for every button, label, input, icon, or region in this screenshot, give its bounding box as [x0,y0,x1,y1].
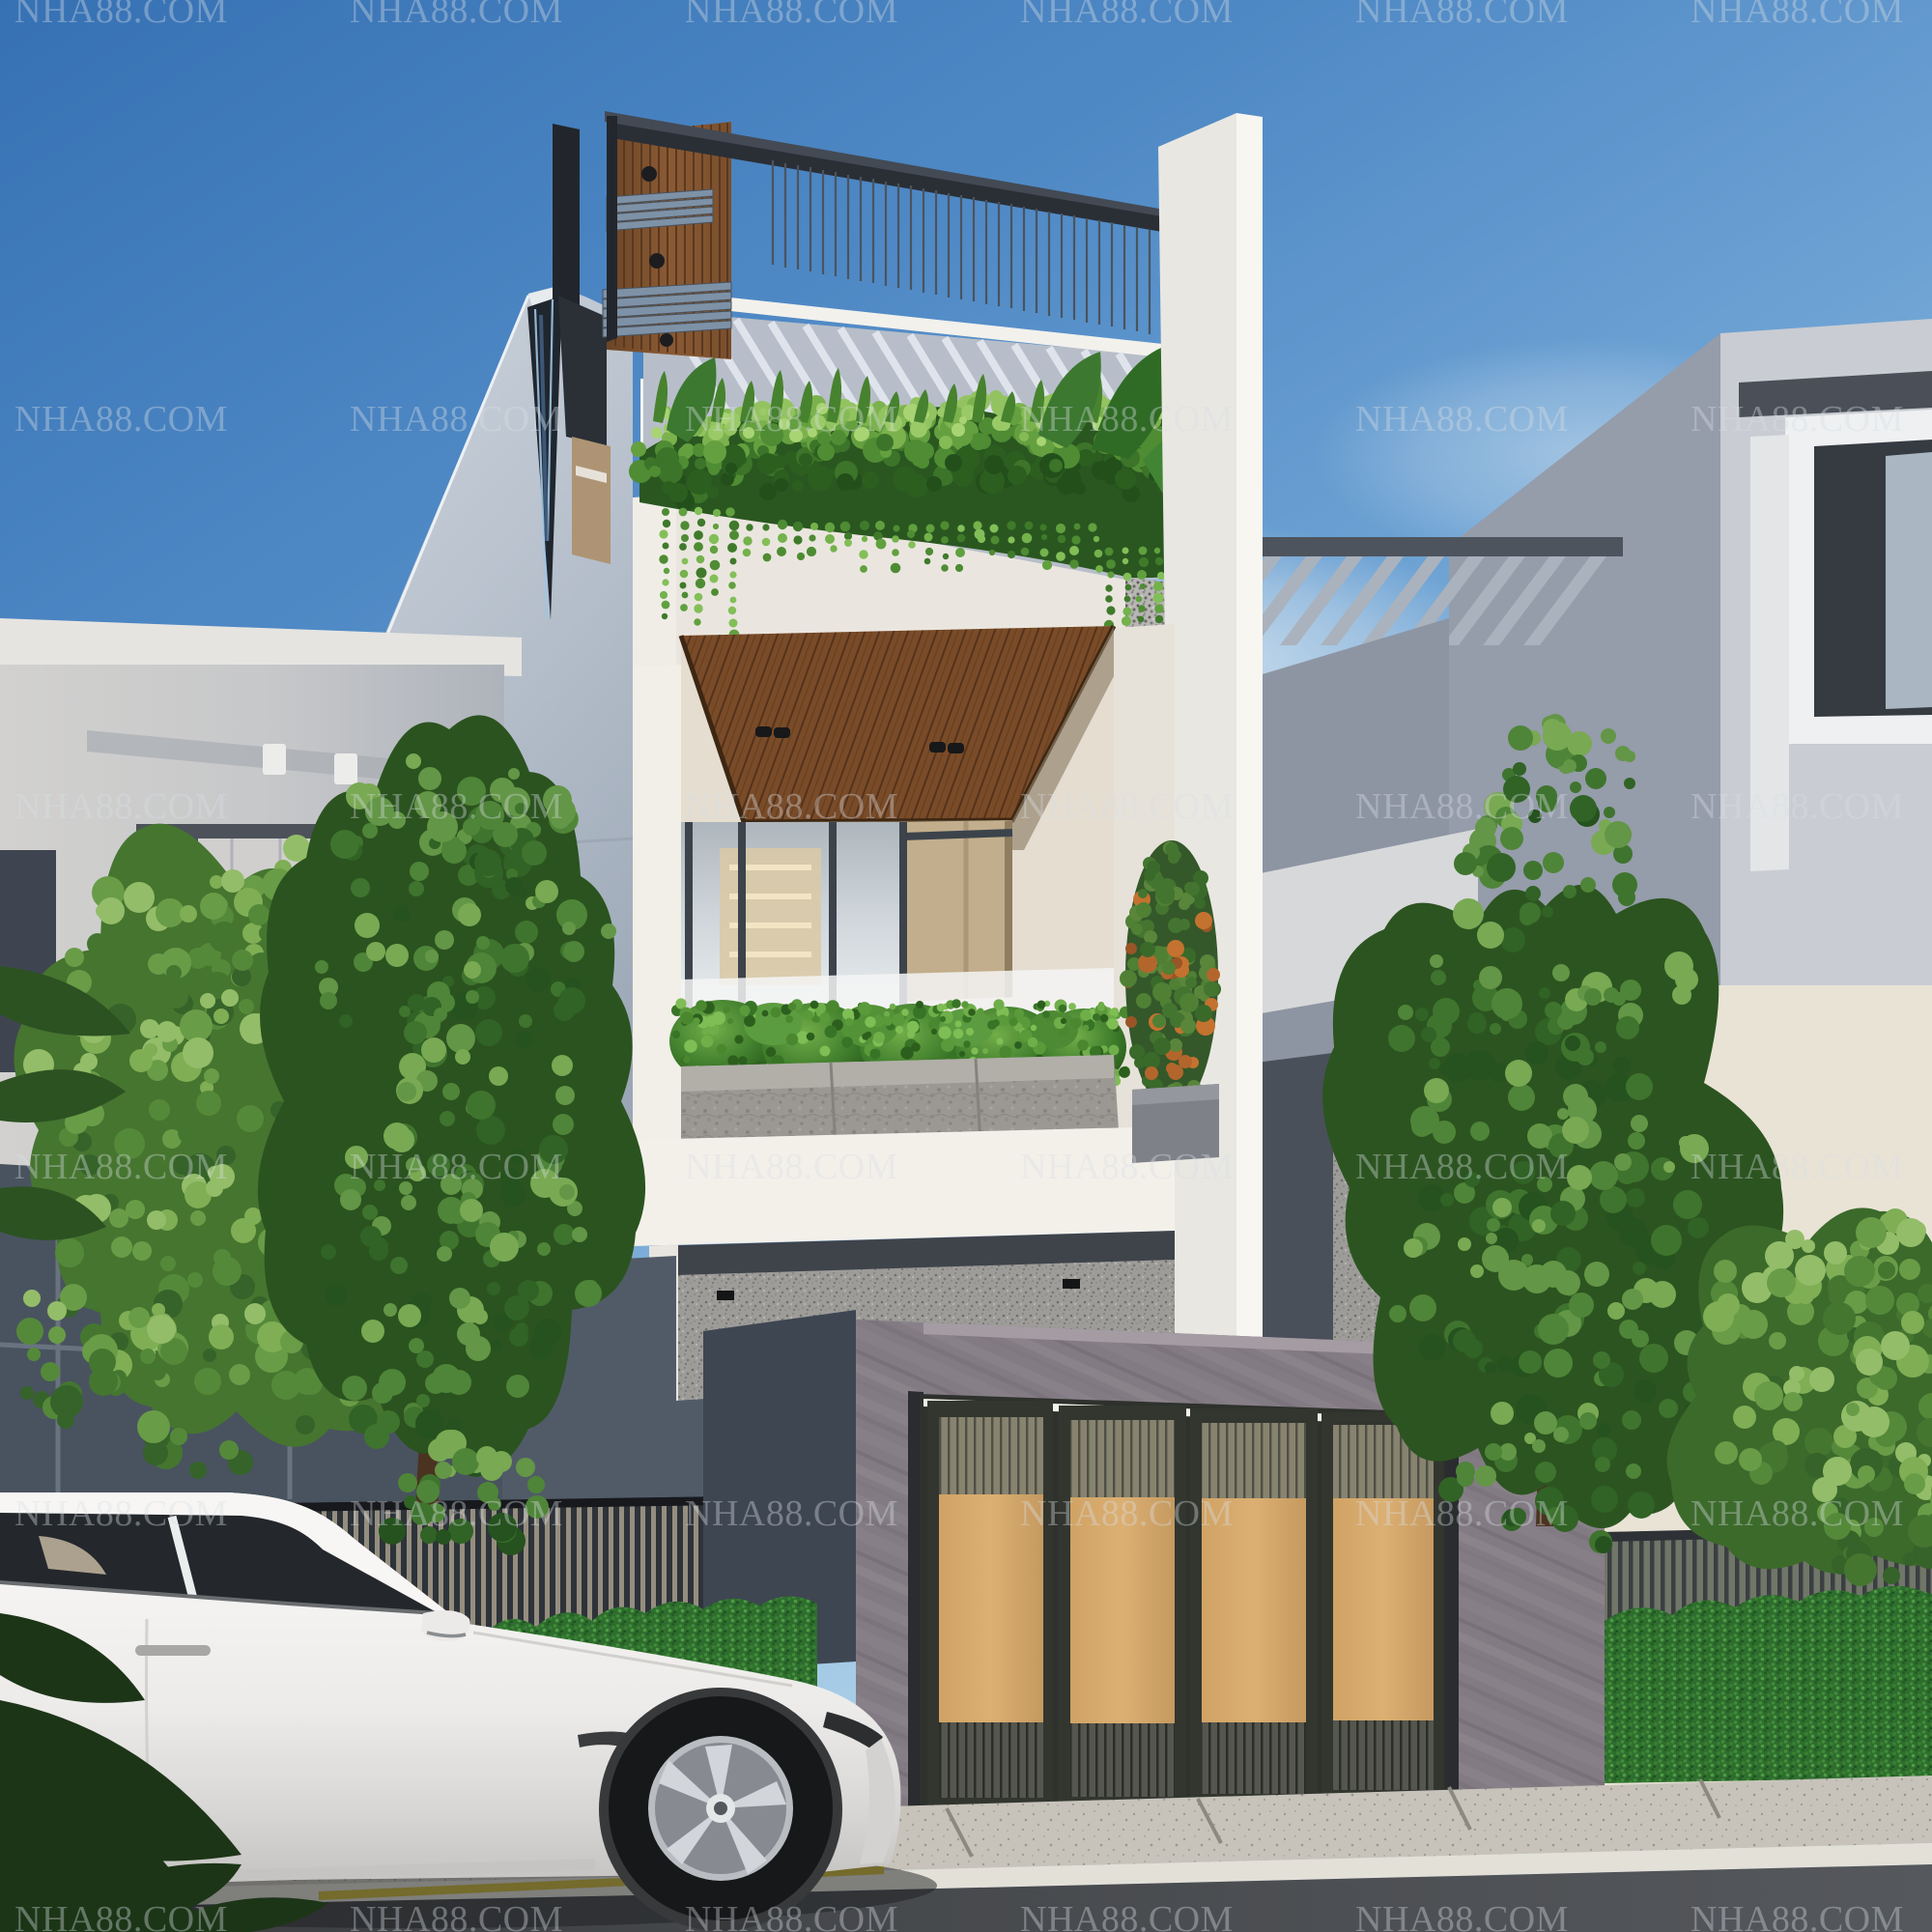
svg-text:NHA88.COM: NHA88.COM [1020,1147,1234,1187]
svg-text:NHA88.COM: NHA88.COM [1020,1493,1234,1534]
svg-text:NHA88.COM: NHA88.COM [685,786,898,827]
svg-text:NHA88.COM: NHA88.COM [1355,786,1569,827]
svg-text:NHA88.COM: NHA88.COM [685,399,898,440]
svg-text:NHA88.COM: NHA88.COM [685,1493,898,1534]
svg-text:NHA88.COM: NHA88.COM [1020,786,1234,827]
svg-text:NHA88.COM: NHA88.COM [14,1899,228,1932]
svg-text:NHA88.COM: NHA88.COM [1355,1899,1569,1932]
svg-text:NHA88.COM: NHA88.COM [1020,399,1234,440]
svg-text:NHA88.COM: NHA88.COM [1020,1899,1234,1932]
svg-text:NHA88.COM: NHA88.COM [1020,0,1234,31]
svg-text:NHA88.COM: NHA88.COM [1355,1493,1569,1534]
svg-text:NHA88.COM: NHA88.COM [14,1147,228,1187]
svg-text:NHA88.COM: NHA88.COM [685,1147,898,1187]
svg-text:NHA88.COM: NHA88.COM [14,399,228,440]
svg-text:NHA88.COM: NHA88.COM [350,1147,563,1187]
svg-text:NHA88.COM: NHA88.COM [350,0,563,31]
svg-text:NHA88.COM: NHA88.COM [14,1493,228,1534]
svg-text:NHA88.COM: NHA88.COM [14,786,228,827]
svg-text:NHA88.COM: NHA88.COM [1690,786,1904,827]
svg-text:NHA88.COM: NHA88.COM [1355,1147,1569,1187]
svg-text:NHA88.COM: NHA88.COM [350,399,563,440]
svg-text:NHA88.COM: NHA88.COM [350,1899,563,1932]
svg-text:NHA88.COM: NHA88.COM [1690,1899,1904,1932]
svg-text:NHA88.COM: NHA88.COM [350,786,563,827]
svg-text:NHA88.COM: NHA88.COM [1690,0,1904,31]
svg-text:NHA88.COM: NHA88.COM [1355,0,1569,31]
svg-text:NHA88.COM: NHA88.COM [350,1493,563,1534]
svg-text:NHA88.COM: NHA88.COM [685,1899,898,1932]
svg-text:NHA88.COM: NHA88.COM [1690,1493,1904,1534]
svg-text:NHA88.COM: NHA88.COM [1690,399,1904,440]
svg-text:NHA88.COM: NHA88.COM [1690,1147,1904,1187]
svg-text:NHA88.COM: NHA88.COM [685,0,898,31]
svg-text:NHA88.COM: NHA88.COM [14,0,228,31]
svg-text:NHA88.COM: NHA88.COM [1355,399,1569,440]
